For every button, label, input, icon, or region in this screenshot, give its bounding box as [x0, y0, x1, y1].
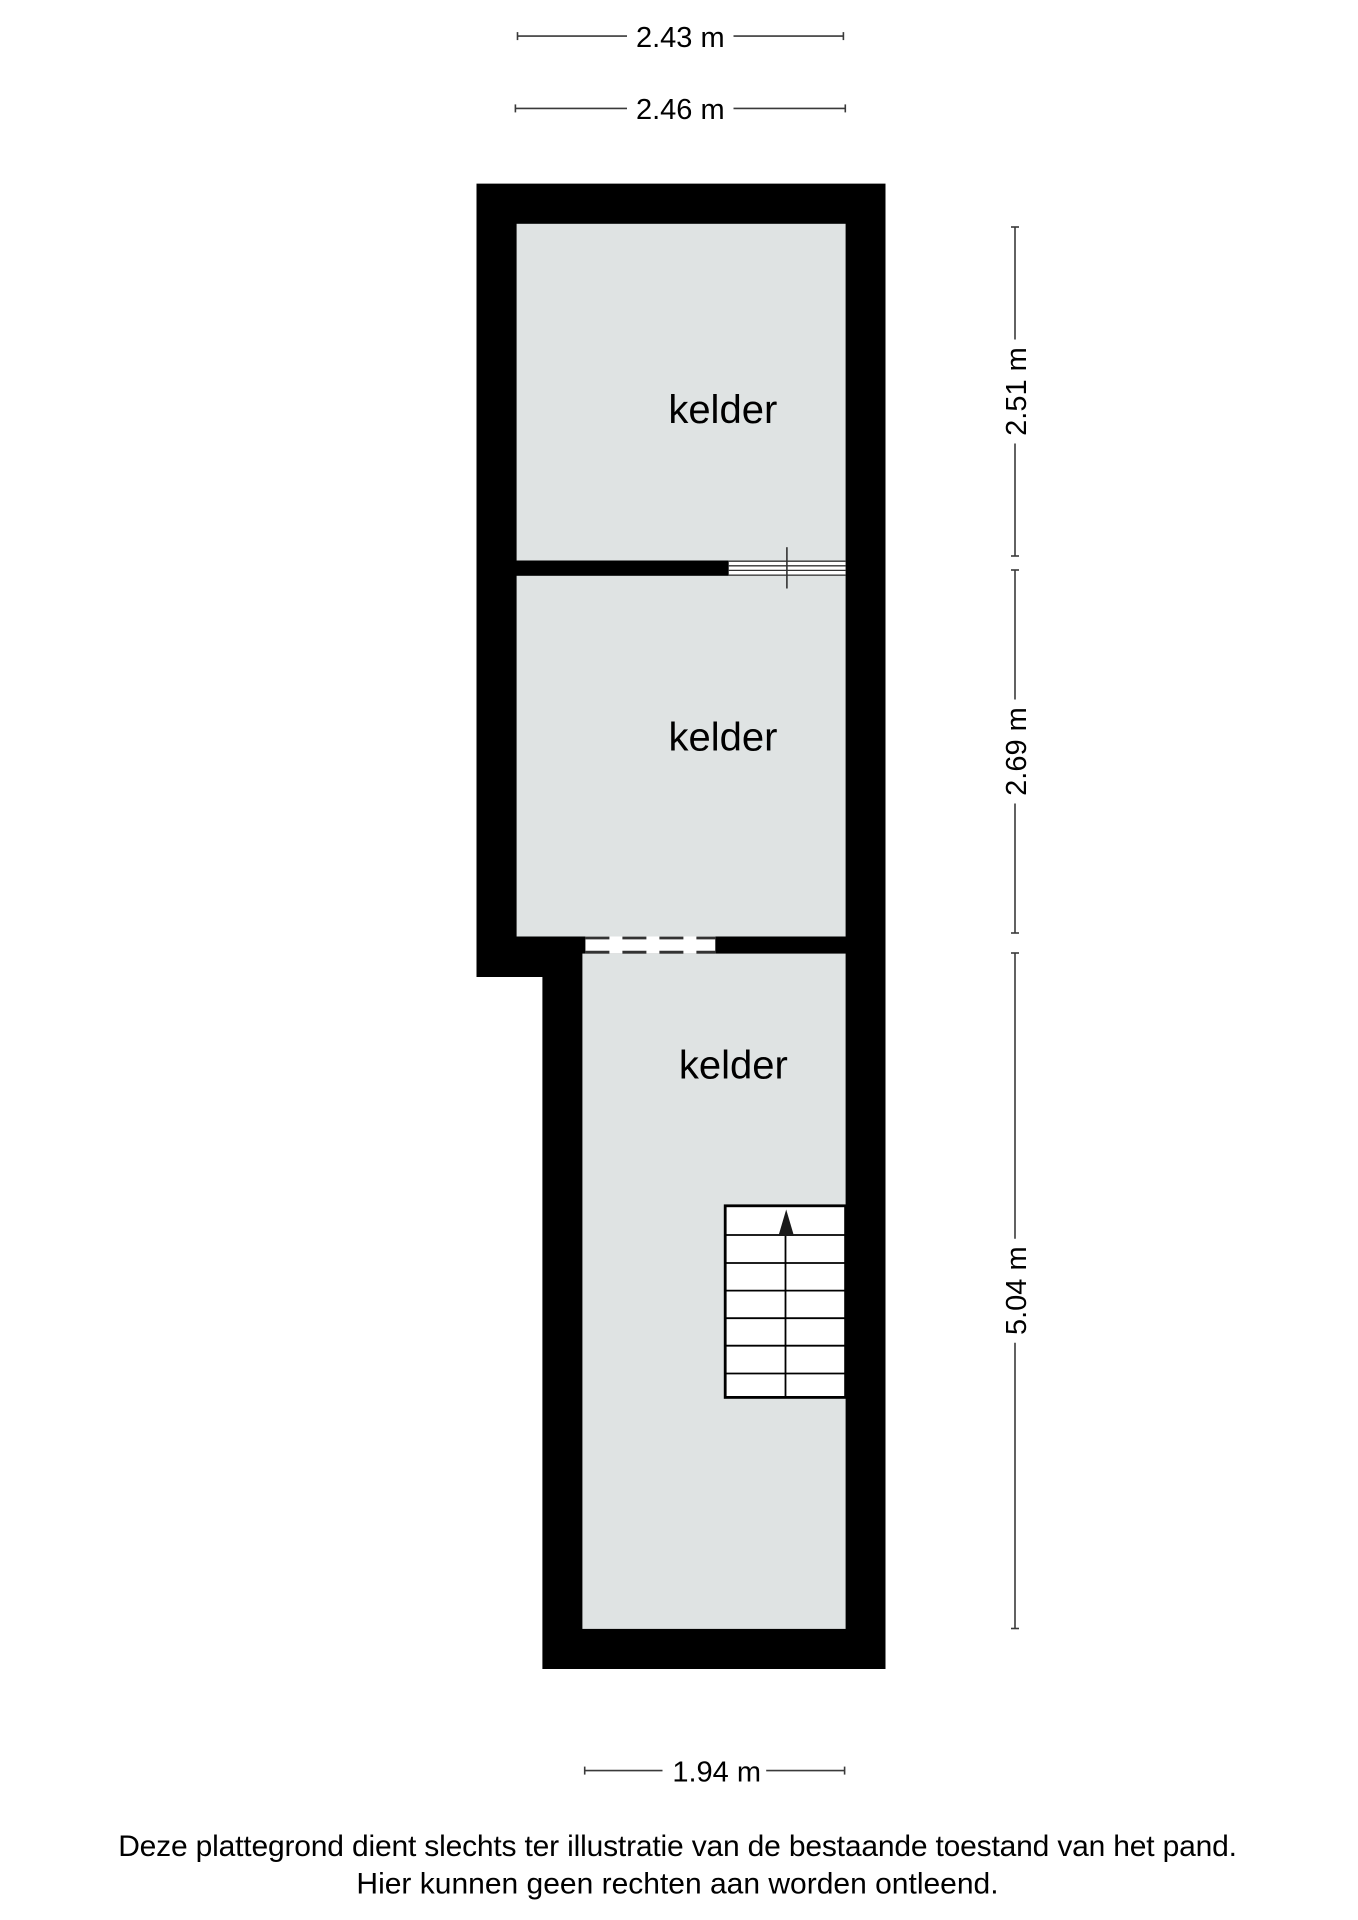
svg-text:2.43 m: 2.43 m [636, 22, 725, 54]
svg-text:kelder: kelder [669, 716, 778, 760]
svg-text:2.46 m: 2.46 m [636, 94, 725, 126]
svg-text:1.94 m: 1.94 m [672, 1757, 761, 1789]
svg-text:Hier kunnen geen rechten aan w: Hier kunnen geen rechten aan worden ontl… [356, 1868, 998, 1901]
svg-text:kelder: kelder [679, 1043, 788, 1087]
svg-text:Deze plattegrond dient slechts: Deze plattegrond dient slechts ter illus… [118, 1830, 1237, 1863]
svg-text:5.04 m: 5.04 m [1001, 1246, 1033, 1335]
svg-text:2.51 m: 2.51 m [1001, 347, 1033, 436]
svg-text:kelder: kelder [668, 388, 777, 432]
svg-text:2.69 m: 2.69 m [1001, 707, 1033, 796]
